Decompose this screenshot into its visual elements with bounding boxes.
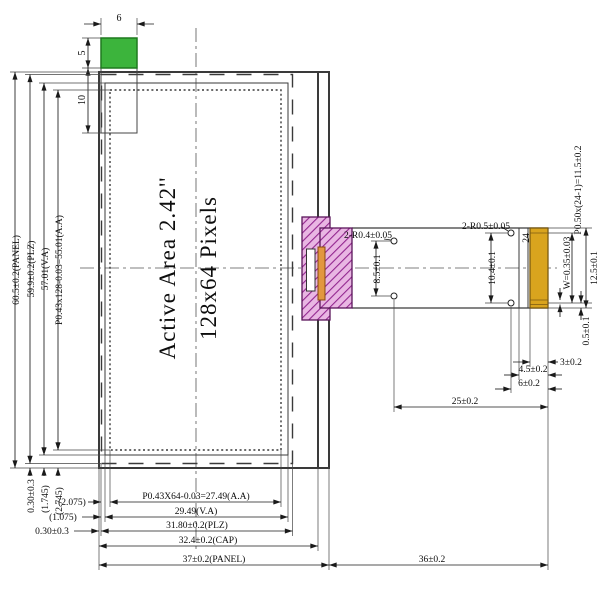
dim-stiffener-6: 6±0.2 (518, 379, 540, 389)
dim-holes-left-radius: 2-R0.4±0.05 (344, 231, 392, 241)
dim-cap-width: 32.4±0.2(CAP) (179, 535, 238, 546)
dim-panel-width: 37±0.2(PANEL) (183, 554, 246, 565)
dim-holes-left-spacing: 8.5±0.1 (373, 254, 383, 283)
dim-holes-right-radius: 2-R0.5±0.05 (462, 222, 510, 232)
dim-connector-width: 12.5±0.1 (590, 251, 600, 285)
dim-polarizer-height: 59.9±0.2(PLZ) (26, 241, 37, 298)
alignment-hole-right-bottom (508, 300, 514, 306)
dim-viewing-area-width: 29.49(V.A) (175, 506, 218, 517)
dim-hole-to-end: 25±0.2 (452, 397, 479, 407)
fpc-inner-window (307, 249, 316, 291)
label-resolution: 128x64 Pixels (196, 196, 221, 340)
dim-pin-pitch: P0.50x(24-1)=11.5±0.2 (573, 145, 584, 234)
tab-inner-outline (101, 68, 137, 133)
dim-pin-edge-offset: 0.5±0.1 (582, 316, 592, 345)
dim-pin-count: 24 (522, 233, 532, 243)
oled-module-drawing: Active Area 2.42'' 128x64 Pixels 6 5 10 … (0, 0, 600, 600)
fpc-view (302, 217, 548, 320)
dim-panel-height: 60.5±0.2(PANEL) (11, 235, 22, 305)
height-dimensions: 60.5±0.2(PANEL) 59.9±0.2(PLZ) 57.01(V.A)… (10, 72, 110, 515)
oled-module-drawing-page: Active Area 2.42'' 128x64 Pixels 6 5 10 … (0, 0, 600, 600)
fpc-adhesive-strip (318, 247, 325, 300)
dim-left-gap-va: (1.075) (49, 512, 77, 523)
dim-polarizer-width: 31.80±0.2(PLZ) (166, 520, 228, 531)
alignment-hole-left-bottom (391, 293, 397, 299)
dim-viewing-area-height: 57.01(V.A) (40, 248, 51, 291)
dim-bottom-gap-plz: 0.30±0.3 (27, 479, 37, 513)
dim-tab-width: 6 (117, 13, 122, 24)
label-active-area: Active Area 2.42'' (155, 177, 180, 360)
dim-active-area-height: P0.43x128-0.03=55.01(A.A) (54, 215, 65, 325)
dim-holes-right-spacing: 10.4±0.1 (488, 251, 498, 285)
dim-left-gap-plz: 0.30±0.3 (35, 527, 69, 537)
dim-stiffener-45: 4.5±0.2 (519, 365, 548, 375)
dim-tab-depth: 10 (77, 95, 88, 105)
dim-left-gap-aa: (2.075) (58, 497, 86, 508)
dim-tab-height: 5 (77, 51, 88, 56)
dim-stiffener-3: 3±0.2 (560, 358, 582, 368)
dim-fpc-length: 36±0.2 (419, 555, 446, 565)
gold-finger-connector (530, 228, 548, 308)
dim-bottom-gap-va: (1.745) (40, 485, 51, 513)
protect-film-tab (101, 38, 137, 68)
fpc-dimensions: 2-R0.4±0.05 2-R0.5±0.05 8.5±0.1 10.4±0.1… (329, 145, 600, 570)
dim-pin-width: W=0.35±0.03 (563, 236, 573, 289)
dim-active-area-width: P0.43X64-0.03=27.49(A.A) (142, 491, 249, 502)
